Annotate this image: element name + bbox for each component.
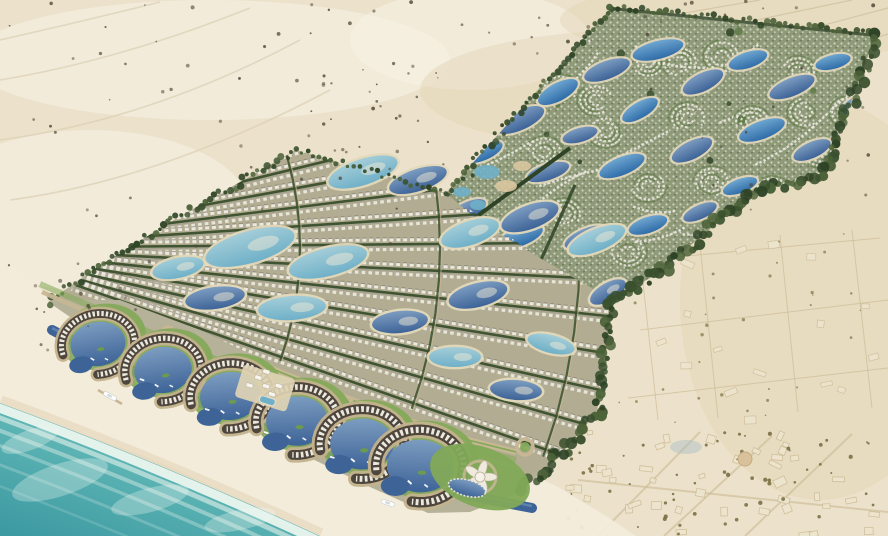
dome-structure (738, 452, 752, 466)
amenity-hub-patch (513, 161, 531, 171)
amenity-hub-patch (453, 187, 471, 197)
amenity-hub-patch (474, 165, 500, 179)
amenity-hub-patch (495, 180, 517, 192)
screenshot-root (0, 0, 888, 536)
masterplan-aerial-image (0, 0, 888, 536)
lagoon-pool (426, 345, 483, 370)
amenity-hub-patch (470, 200, 486, 210)
faded-pool-smudge (670, 440, 702, 454)
